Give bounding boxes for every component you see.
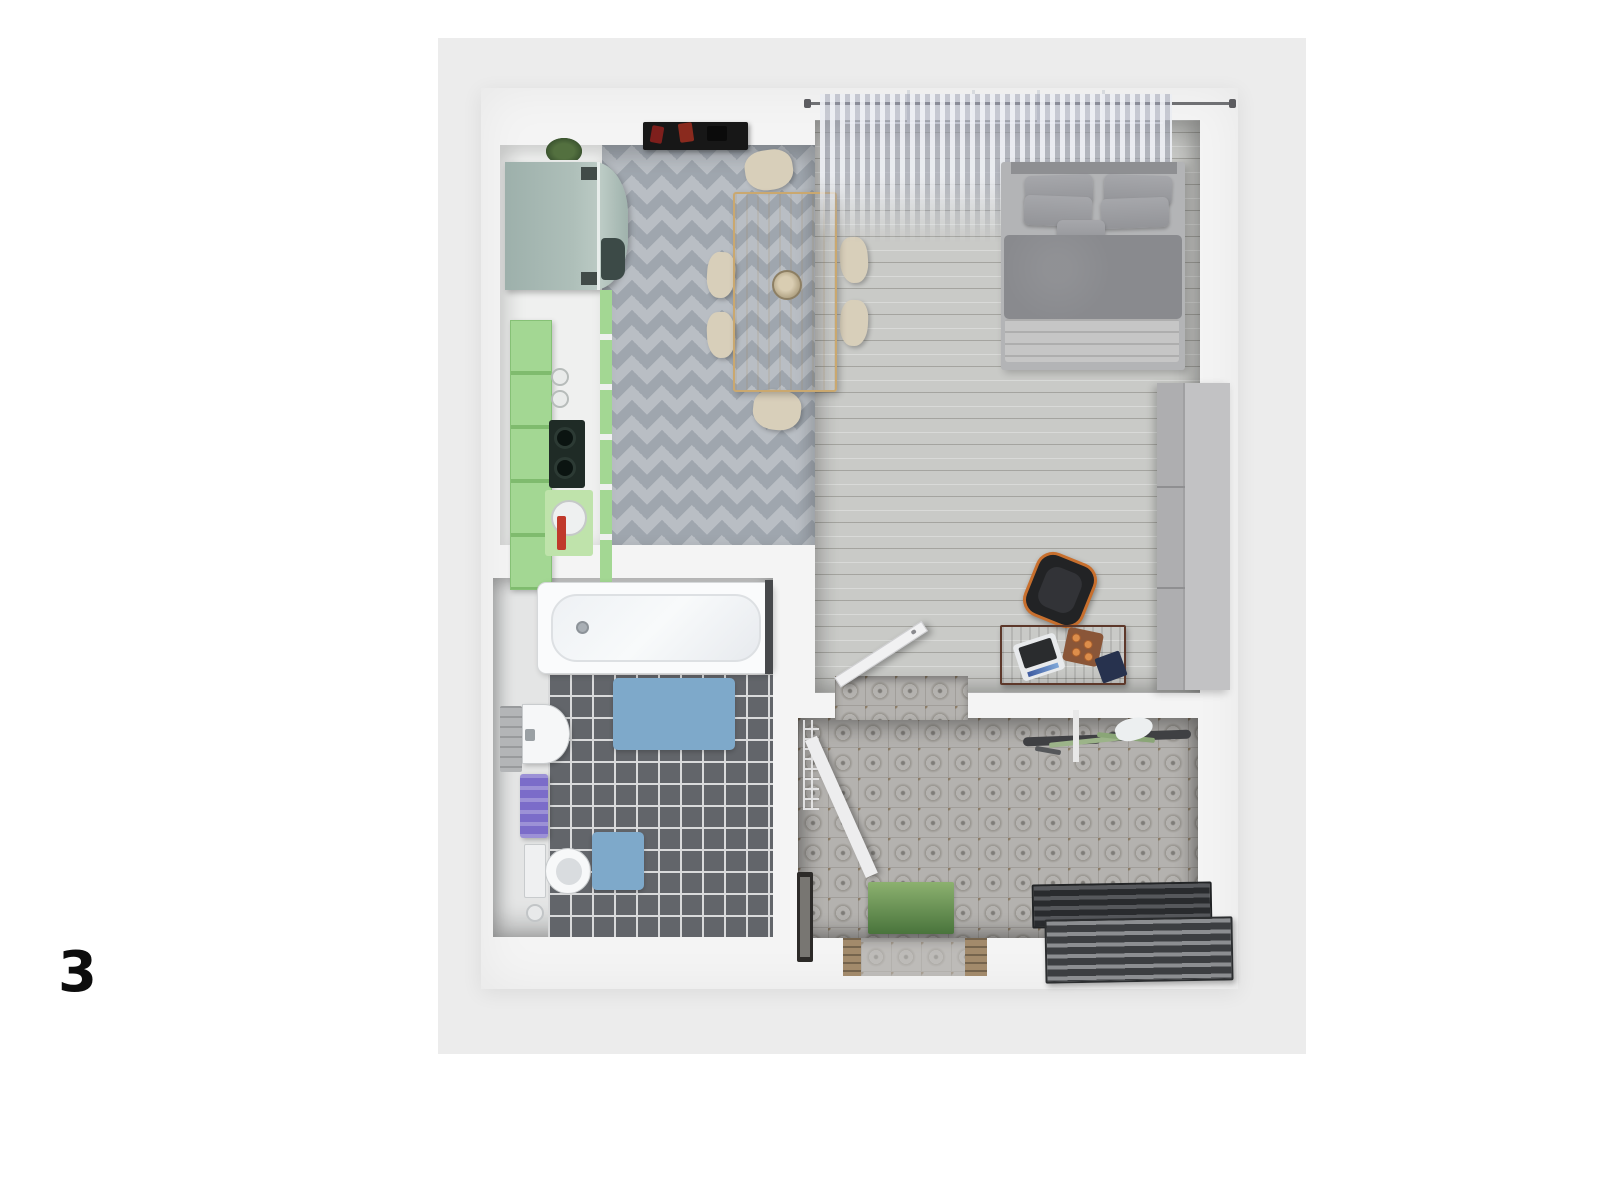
figure-label: 3 — [58, 940, 97, 1005]
fridge-hinge-bottom — [581, 272, 597, 285]
floorplan-canvas — [438, 38, 1306, 1054]
entry-jamb-left — [843, 938, 861, 976]
burner-1 — [554, 427, 576, 449]
bath-mat-large — [613, 678, 735, 750]
fruit-bowl — [772, 270, 802, 300]
headboard — [1011, 162, 1177, 174]
purple-towel — [520, 774, 548, 838]
curtain-rod-cap-left — [804, 99, 811, 108]
mirror — [797, 872, 813, 962]
doormat — [868, 882, 954, 934]
pillow-4 — [1100, 197, 1169, 229]
curtain-rod-cap-right — [1229, 99, 1236, 108]
toilet-cistern — [524, 844, 546, 898]
kitchen-sink-counter — [545, 490, 593, 556]
bath-mat-small — [592, 832, 644, 890]
dining-chair-left-2 — [706, 311, 736, 358]
candle-4 — [1083, 652, 1094, 663]
wardrobe — [1157, 383, 1230, 690]
bike-stand-pole — [1073, 710, 1079, 762]
washbasin-faucet — [525, 729, 535, 741]
burner-2 — [554, 457, 576, 479]
laptop — [1012, 632, 1066, 682]
bench-lower-tier — [1044, 916, 1233, 983]
candle-3 — [1071, 647, 1082, 658]
desk — [1000, 625, 1126, 685]
door-handle — [910, 629, 916, 635]
shelf-item-red-1 — [650, 125, 665, 144]
pot-2 — [551, 390, 569, 408]
bike-handlebar — [1035, 746, 1061, 755]
bathtub — [537, 582, 773, 674]
fridge-door-seam — [597, 162, 600, 290]
bathtub-drain — [576, 621, 589, 634]
entry-jamb-right — [965, 938, 987, 976]
pot-1 — [551, 368, 569, 386]
double-bed — [1001, 162, 1185, 370]
fridge-hinge-top — [581, 167, 597, 180]
bathroom-door-gap — [765, 580, 773, 674]
wardrobe-seam-2 — [1157, 587, 1185, 589]
toilet — [545, 848, 591, 894]
toilet-bowl-inner — [556, 858, 582, 885]
toilet-brush — [526, 904, 544, 922]
bicycle — [1015, 710, 1189, 762]
entry-recess — [843, 938, 987, 976]
candle-1 — [1071, 633, 1082, 644]
stove — [549, 420, 585, 488]
duvet — [1004, 235, 1182, 319]
candle-2 — [1083, 639, 1094, 650]
wardrobe-seam-1 — [1157, 486, 1185, 488]
mirror-glass — [800, 877, 810, 957]
red-bottle — [557, 516, 566, 550]
shelf-item-black — [707, 126, 727, 141]
wall-shelf — [643, 122, 748, 150]
fridge — [505, 162, 628, 290]
entry-floor — [861, 942, 965, 976]
shelf-item-red-2 — [678, 122, 695, 143]
folded-blanket — [1005, 319, 1179, 362]
kitchen-counter-edge — [600, 290, 612, 586]
plant — [546, 138, 582, 160]
bathroom-wall-shelf — [500, 706, 522, 772]
office-chair-seat — [1035, 563, 1086, 616]
page: 3 — [0, 0, 1600, 1200]
fridge-door-recess — [601, 238, 625, 280]
doorway-threshold-tiles — [835, 676, 968, 720]
